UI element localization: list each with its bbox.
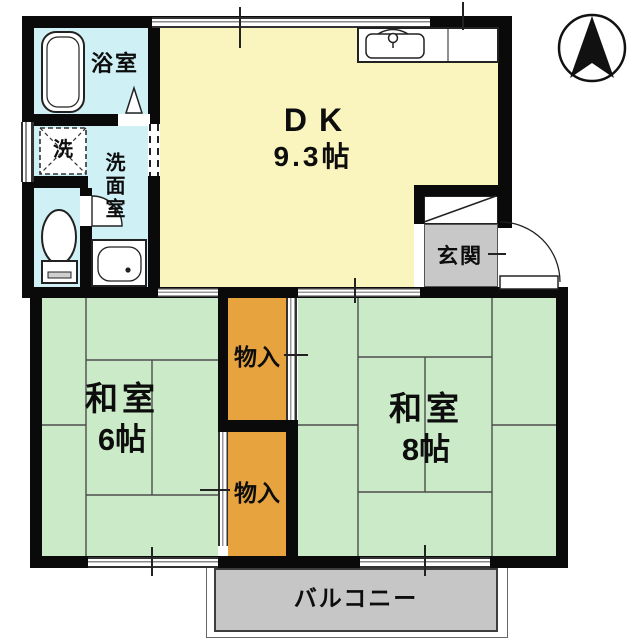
storage-upper-label: 物入	[228, 346, 286, 369]
fixtures-layer	[0, 0, 640, 640]
tatami-lines-8	[298, 298, 556, 556]
washbasin-icon	[92, 240, 146, 286]
dk-label: DK	[238, 104, 388, 136]
balcony-label: バルコニー	[256, 587, 456, 610]
tatami6-label: 和室	[52, 382, 192, 415]
tatami6-size-label: 6帖	[52, 424, 192, 455]
entrance-label: 玄関	[424, 246, 496, 267]
bathroom-door-icon	[126, 88, 142, 113]
kitchen-sink-icon	[358, 28, 498, 62]
north-arrow-icon	[559, 15, 625, 81]
storage-lower-label: 物入	[228, 482, 286, 505]
laundry-label: 洗	[48, 140, 78, 160]
dk-size-label: 9.3帖	[238, 143, 388, 171]
bathroom-label: 浴室	[70, 53, 160, 75]
entrance-door-swing-icon	[500, 222, 560, 289]
toilet-icon	[42, 210, 77, 283]
floor-plan: 浴室 洗 洗面室 DK 9.3帖 玄関 和室 6帖 和室 8帖 物入 物入 バル…	[0, 0, 640, 640]
tatami8-label: 和室	[356, 392, 496, 425]
tatami8-size-label: 8帖	[356, 434, 496, 465]
washroom-label: 洗面室	[103, 136, 123, 236]
shoe-cabinet-icon	[424, 196, 496, 222]
opening-ticks	[152, 2, 506, 576]
dashed-door	[150, 124, 158, 176]
